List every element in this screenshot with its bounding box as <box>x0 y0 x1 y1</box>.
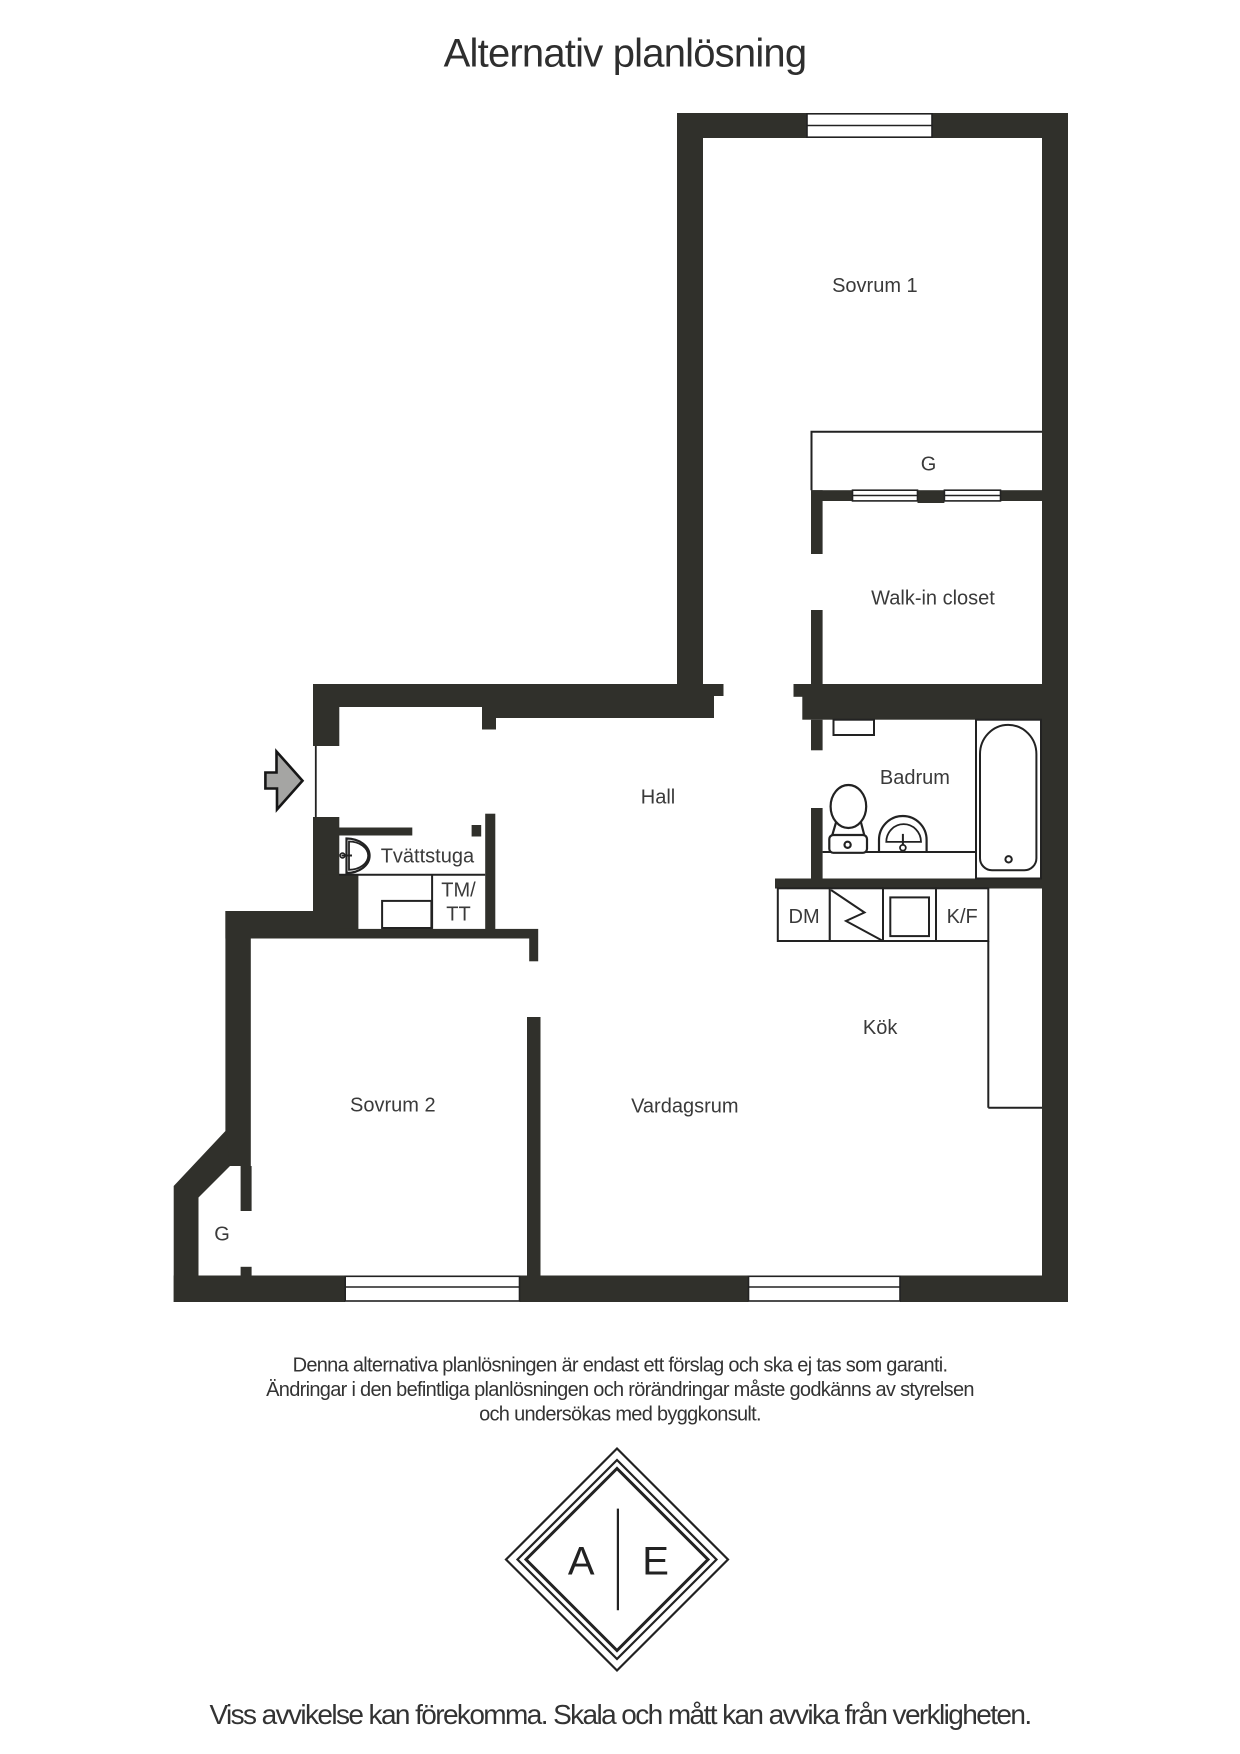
svg-text:Tvättstuga: Tvättstuga <box>381 846 475 868</box>
svg-text:och undersökas med byggkonsult: och undersökas med byggkonsult. <box>479 1404 761 1426</box>
svg-text:Viss avvikelse kan förekomma.: Viss avvikelse kan förekomma. Skala och … <box>209 1699 1030 1730</box>
svg-text:Sovrum 1: Sovrum 1 <box>832 275 918 297</box>
svg-text:K/F: K/F <box>947 906 978 928</box>
svg-text:G: G <box>214 1224 230 1246</box>
svg-text:Kök: Kök <box>863 1017 898 1039</box>
svg-text:A: A <box>568 1540 595 1584</box>
svg-text:Badrum: Badrum <box>880 767 950 789</box>
svg-text:E: E <box>642 1540 669 1584</box>
svg-text:Vardagsrum: Vardagsrum <box>631 1096 738 1118</box>
svg-text:TT: TT <box>446 904 470 926</box>
svg-text:Hall: Hall <box>641 786 675 808</box>
svg-text:DM: DM <box>789 906 820 928</box>
svg-text:Sovrum 2: Sovrum 2 <box>350 1095 436 1117</box>
svg-text:Denna alternativa planlösninge: Denna alternativa planlösningen är endas… <box>293 1355 948 1377</box>
svg-text:G: G <box>921 453 937 475</box>
svg-text:Alternativ planlösning: Alternativ planlösning <box>444 32 807 76</box>
svg-text:Ändringar i den befintliga pla: Ändringar i den befintliga planlösningen… <box>266 1379 974 1401</box>
svg-text:Walk-in closet: Walk-in closet <box>871 588 995 610</box>
svg-text:TM/: TM/ <box>441 880 476 902</box>
